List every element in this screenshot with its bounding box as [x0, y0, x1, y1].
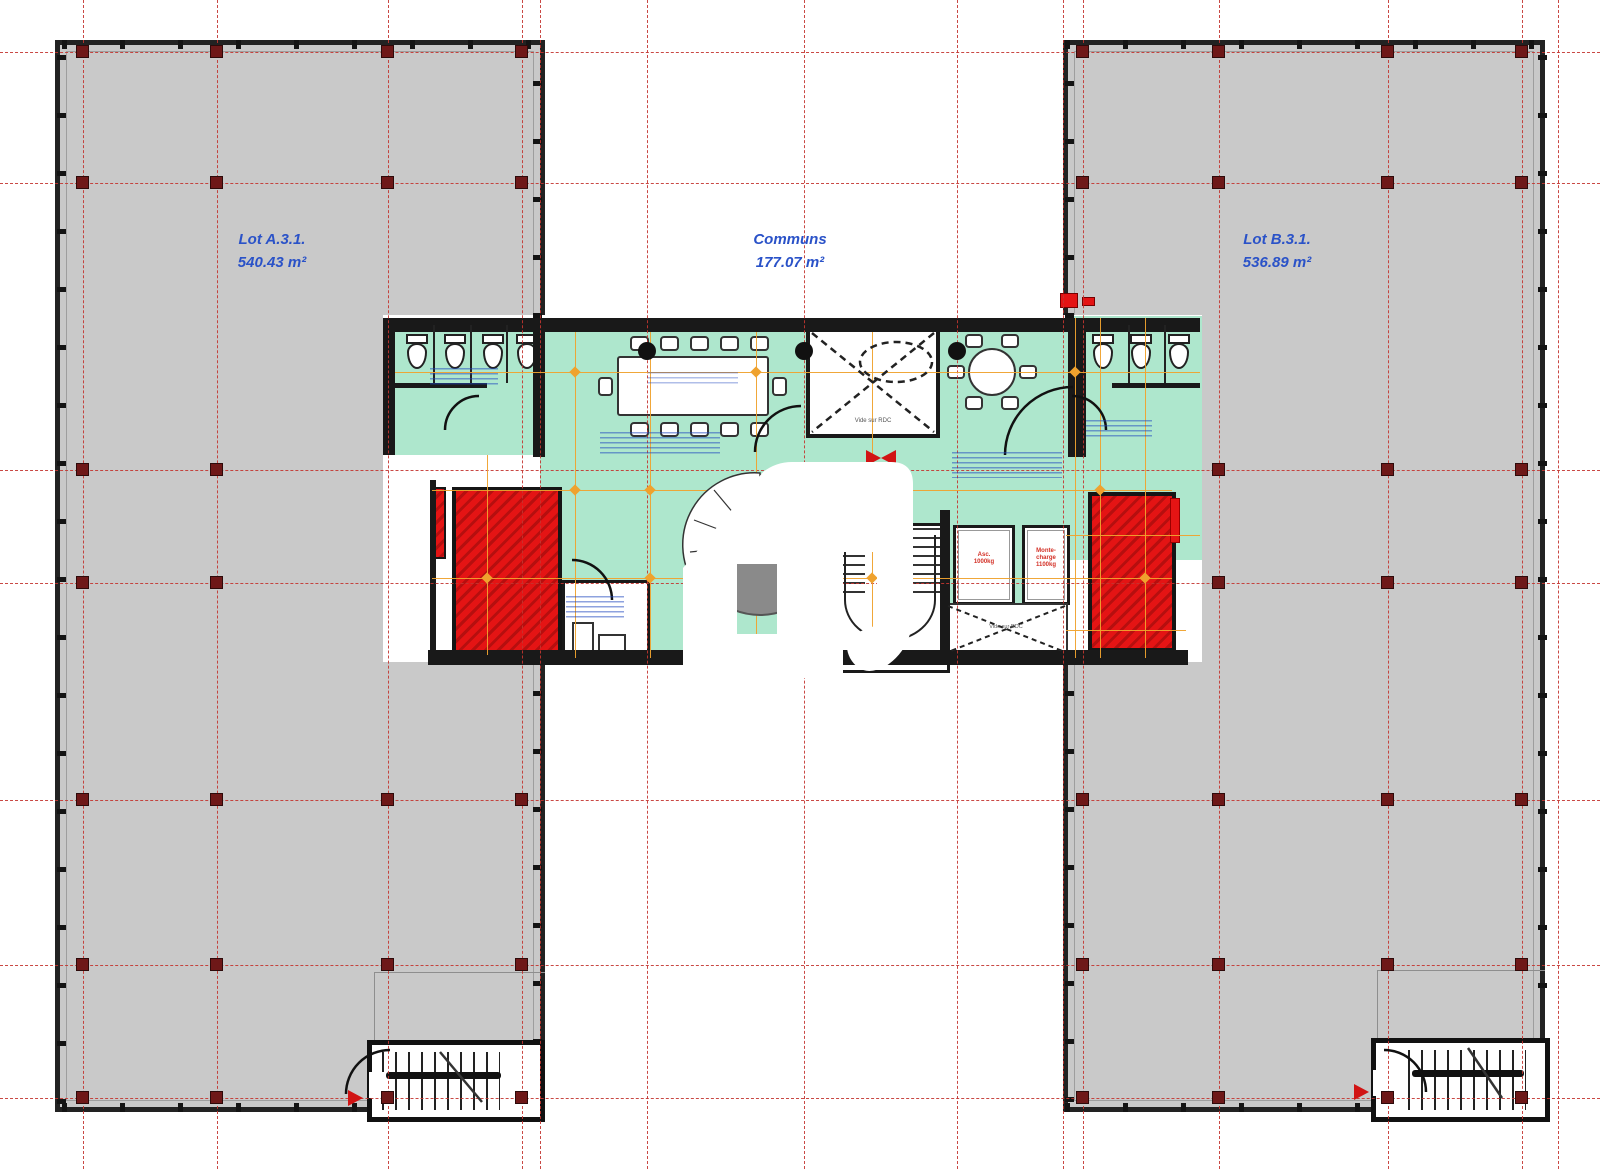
- wc-partition: [506, 325, 508, 383]
- column-marker: [515, 176, 528, 189]
- stair-right-treads: [1408, 1050, 1526, 1110]
- wc-partition: [1164, 325, 1166, 383]
- column-marker: [210, 45, 223, 58]
- stair-core-wall: [940, 510, 950, 658]
- lot-a-name: Lot A.3.1.: [238, 228, 306, 251]
- column-marker: [1515, 793, 1528, 806]
- column-marker: [210, 463, 223, 476]
- column-marker: [210, 176, 223, 189]
- freight-label: Monte- charge 1100kg: [1036, 548, 1056, 570]
- floor-plan: Lot A.3.1. 540.43 m² Communs 177.07 m² L…: [0, 0, 1600, 1169]
- orange-guide-vertical: [872, 332, 873, 658]
- chair: [690, 336, 709, 351]
- column-marker: [76, 176, 89, 189]
- right-wing-left-windows-top: [1065, 46, 1074, 318]
- column-marker: [1515, 45, 1528, 58]
- column-marker: [1076, 1091, 1089, 1104]
- column-marker: [210, 1091, 223, 1104]
- wc-partition: [1128, 325, 1130, 383]
- void-upper-label: Vide sur RDC: [855, 418, 892, 424]
- column-marker: [1381, 176, 1394, 189]
- grid-line-horizontal: [0, 183, 1600, 184]
- column-marker: [1515, 463, 1528, 476]
- grid-line-horizontal: [0, 52, 1600, 53]
- grid-line-vertical: [1558, 0, 1559, 1169]
- orange-guide-vertical: [487, 455, 488, 655]
- column-marker: [76, 1091, 89, 1104]
- column-marker: [210, 958, 223, 971]
- wc-right-partition: [1112, 383, 1200, 388]
- freight-label-l3: 1100kg: [1036, 562, 1056, 569]
- right-wing-left-windows-bottom: [1065, 662, 1074, 1102]
- boundary-line-left-h: [374, 972, 545, 973]
- void-lower-label: Vide sur RDC: [989, 624, 1023, 630]
- orange-guide-horizontal: [432, 578, 1172, 579]
- chair: [660, 336, 679, 351]
- stair-right-handrail: [1412, 1070, 1524, 1077]
- elevator-label-l1: Asc.: [974, 552, 994, 559]
- chair: [720, 422, 739, 437]
- chair: [965, 334, 983, 348]
- column-marker: [1515, 176, 1528, 189]
- chair: [720, 336, 739, 351]
- annotation-text-block: [566, 596, 624, 620]
- chair: [750, 422, 769, 437]
- column-marker: [1212, 176, 1225, 189]
- column-marker: [1076, 958, 1089, 971]
- annotation-text-block: [1086, 420, 1152, 440]
- column-marker: [210, 793, 223, 806]
- column-marker: [515, 958, 528, 971]
- column-marker: [1212, 45, 1225, 58]
- grid-line-horizontal: [0, 470, 1600, 471]
- column-marker: [1515, 1091, 1528, 1104]
- chair: [1001, 334, 1019, 348]
- chair: [750, 336, 769, 351]
- column-marker: [1381, 463, 1394, 476]
- column-marker: [1381, 793, 1394, 806]
- stair-left-treads: [382, 1052, 500, 1110]
- lot-b-area: 536.89 m²: [1243, 251, 1311, 274]
- orange-guide-horizontal: [432, 490, 1172, 491]
- meeting-table: [617, 356, 769, 416]
- column-marker: [1076, 793, 1089, 806]
- left-wing-left-windows: [57, 46, 66, 1104]
- column-marker: [381, 793, 394, 806]
- orange-guide-vertical: [756, 332, 757, 658]
- grid-line-vertical: [647, 0, 648, 1169]
- column-marker: [1212, 793, 1225, 806]
- annotation-text-block: [600, 432, 720, 456]
- boundary-line-right-v: [1377, 970, 1378, 1042]
- column-marker: [76, 793, 89, 806]
- chair: [772, 377, 787, 396]
- label-lot-b: Lot B.3.1. 536.89 m²: [1243, 228, 1311, 275]
- column-marker: [515, 1091, 528, 1104]
- column-marker: [1212, 958, 1225, 971]
- column-marker: [76, 576, 89, 589]
- right-wing-top-windows: [1065, 40, 1543, 49]
- chair: [1001, 396, 1019, 410]
- column-marker: [515, 45, 528, 58]
- column-marker: [381, 958, 394, 971]
- communs-area: 177.07 m²: [753, 251, 826, 274]
- column-marker: [1076, 176, 1089, 189]
- column-marker: [381, 176, 394, 189]
- column-marker: [76, 463, 89, 476]
- column-marker: [381, 1091, 394, 1104]
- column-marker: [1212, 463, 1225, 476]
- grid-line-vertical: [804, 0, 805, 1169]
- grid-line-vertical: [540, 0, 541, 1169]
- left-notch-wall: [383, 318, 395, 455]
- column-marker: [1076, 45, 1089, 58]
- switchback-stair-treads-right: [890, 528, 945, 598]
- communs-name: Communs: [753, 228, 826, 251]
- annotation-text-block: [648, 372, 738, 386]
- column-marker: [515, 793, 528, 806]
- column-marker: [76, 45, 89, 58]
- chair: [598, 377, 613, 396]
- grid-line-vertical: [957, 0, 958, 1169]
- column-marker: [76, 958, 89, 971]
- grid-line-horizontal: [0, 583, 1600, 584]
- stair-left-handrail: [386, 1072, 501, 1079]
- label-lot-a: Lot A.3.1. 540.43 m²: [238, 228, 306, 275]
- red-shaft-right: [1088, 492, 1176, 652]
- right-wing-right-windows: [1538, 46, 1547, 1104]
- column-marker: [1212, 576, 1225, 589]
- column-marker: [1515, 576, 1528, 589]
- column-marker: [1381, 576, 1394, 589]
- column-marker: [210, 576, 223, 589]
- core-left-wall: [533, 330, 545, 457]
- annotation-text-block: [430, 368, 498, 386]
- grid-line-vertical: [1063, 0, 1064, 1169]
- orange-guide-vertical: [1145, 318, 1146, 658]
- grid-line-horizontal: [0, 1098, 1600, 1099]
- core-bottom-facade: [428, 650, 1188, 665]
- boundary-line-left-v: [374, 972, 375, 1042]
- column-marker: [1212, 1091, 1225, 1104]
- lot-b-name: Lot B.3.1.: [1243, 228, 1311, 251]
- switchback-stair-treads-left: [830, 528, 865, 598]
- column-marker: [1381, 1091, 1394, 1104]
- column-marker: [381, 45, 394, 58]
- chair: [965, 396, 983, 410]
- elevator-label: Asc. 1000kg: [974, 552, 994, 566]
- column-marker: [1515, 958, 1528, 971]
- annotation-text-block: [952, 452, 1062, 478]
- orange-guide-horizontal: [1066, 630, 1186, 631]
- label-communs: Communs 177.07 m²: [753, 228, 826, 275]
- freight-label-l2: charge: [1036, 555, 1056, 562]
- column-marker: [1381, 958, 1394, 971]
- column-marker: [1381, 45, 1394, 58]
- grid-line-horizontal: [0, 965, 1600, 966]
- red-shaft-left: [452, 487, 562, 658]
- lot-a-area: 540.43 m²: [238, 251, 306, 274]
- red-duct-marker: [1170, 498, 1180, 543]
- elevator-label-l2: 1000kg: [974, 559, 994, 566]
- corridor-wall: [430, 480, 436, 652]
- left-wing-top-windows: [62, 40, 540, 49]
- orange-guide-horizontal: [1066, 535, 1200, 536]
- freight-label-l1: Monte-: [1036, 548, 1056, 555]
- grid-line-horizontal: [0, 800, 1600, 801]
